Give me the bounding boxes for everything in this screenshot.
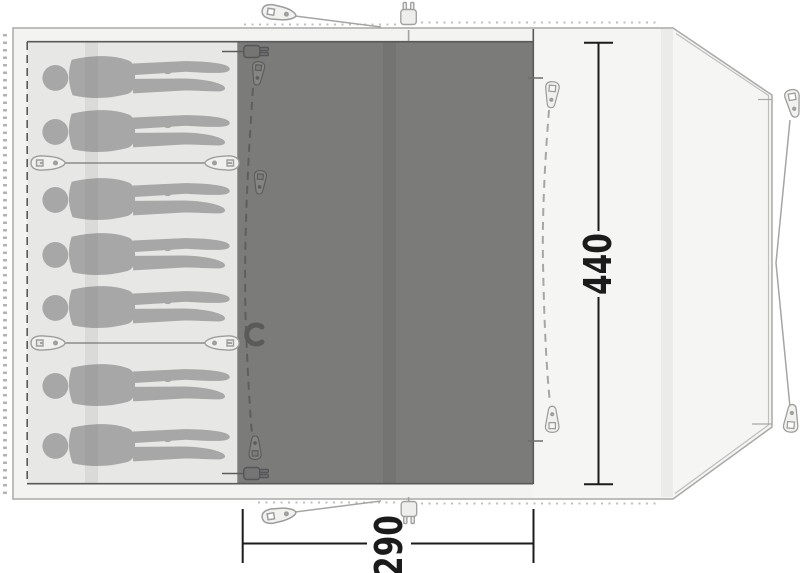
guy-line-peg-icon <box>261 3 297 23</box>
tent-floorplan: 440 290 <box>0 0 800 573</box>
guy-line-peg-icon <box>783 404 800 433</box>
dimension-front-width-label: 290 <box>370 515 408 573</box>
guy-line-right <box>776 120 790 407</box>
guy-line-peg-icon <box>261 505 297 525</box>
power-plug-icon <box>401 3 417 25</box>
floorplan-svg <box>0 0 800 573</box>
living-shadow-band <box>383 41 396 484</box>
porch-shadow-band <box>661 29 673 497</box>
bedroom-shadow-band <box>85 42 98 484</box>
guy-line-peg-icon <box>784 88 800 118</box>
guy-line-top-left <box>295 16 381 27</box>
porch-floor <box>533 29 771 498</box>
guy-line-bottom-left <box>295 501 381 512</box>
dimension-depth-label: 440 <box>579 233 617 295</box>
